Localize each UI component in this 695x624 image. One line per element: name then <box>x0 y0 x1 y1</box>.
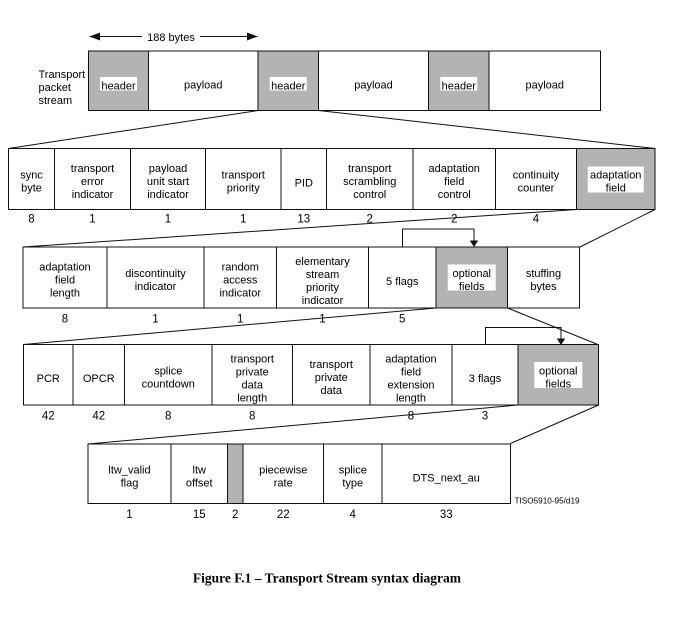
svg-text:payloadunit startindicator: payloadunit startindicator <box>147 163 189 201</box>
svg-text:42: 42 <box>42 411 55 423</box>
svg-text:DTS_next_au: DTS_next_au <box>413 472 480 484</box>
svg-text:payload: payload <box>525 80 564 92</box>
svg-text:2: 2 <box>451 214 457 226</box>
svg-text:1: 1 <box>152 314 158 326</box>
svg-text:5: 5 <box>399 314 405 326</box>
svg-text:5 flags: 5 flags <box>386 276 419 288</box>
svg-text:payload: payload <box>184 80 223 92</box>
svg-text:42: 42 <box>92 411 105 423</box>
svg-text:header: header <box>442 81 477 93</box>
svg-text:header: header <box>271 81 306 93</box>
svg-text:1: 1 <box>89 214 95 226</box>
svg-text:8: 8 <box>165 411 171 423</box>
svg-text:continuitycounter: continuitycounter <box>513 170 560 195</box>
svg-text:randomaccessindicator: randomaccessindicator <box>219 262 261 300</box>
svg-text:stuffingbytes: stuffingbytes <box>526 268 561 293</box>
svg-text:1: 1 <box>165 214 171 226</box>
svg-text:1: 1 <box>319 314 325 326</box>
svg-text:1: 1 <box>237 314 243 326</box>
svg-text:15: 15 <box>193 509 206 521</box>
svg-text:1: 1 <box>240 214 246 226</box>
svg-text:TISO5910-95/d19: TISO5910-95/d19 <box>515 497 581 506</box>
svg-text:syncbyte: syncbyte <box>20 170 43 195</box>
svg-text:PCR: PCR <box>37 373 60 385</box>
svg-text:header: header <box>101 81 136 93</box>
svg-text:4: 4 <box>350 509 357 521</box>
svg-text:PID: PID <box>295 178 313 190</box>
svg-text:3 flags: 3 flags <box>469 373 502 385</box>
svg-text:Figure F.1 – Transport Stream: Figure F.1 – Transport Stream syntax dia… <box>193 571 462 586</box>
svg-text:2: 2 <box>232 509 238 521</box>
svg-text:22: 22 <box>277 509 290 521</box>
svg-text:splicetype: splicetype <box>339 464 367 489</box>
svg-text:8: 8 <box>28 214 34 226</box>
svg-text:1: 1 <box>126 509 132 521</box>
svg-text:13: 13 <box>297 214 310 226</box>
svg-text:transportpriority: transportpriority <box>222 170 265 195</box>
svg-text:Transportpacketstream: Transportpacketstream <box>39 69 86 107</box>
svg-text:8: 8 <box>62 314 68 326</box>
svg-text:payload: payload <box>354 80 393 92</box>
svg-text:188 bytes: 188 bytes <box>147 32 195 44</box>
svg-text:OPCR: OPCR <box>83 373 115 385</box>
svg-text:33: 33 <box>440 509 453 521</box>
svg-text:3: 3 <box>482 411 488 423</box>
svg-text:8: 8 <box>408 411 414 423</box>
svg-text:8: 8 <box>249 411 255 423</box>
svg-text:4: 4 <box>533 214 540 226</box>
